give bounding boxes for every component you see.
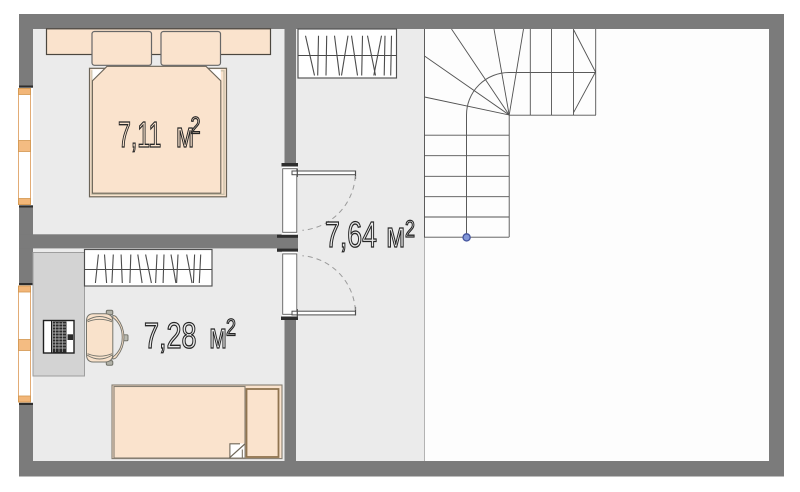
svg-text:7,64: 7,64 <box>325 214 377 255</box>
svg-text:7,28: 7,28 <box>144 315 197 356</box>
svg-text:7,11: 7,11 <box>118 116 161 155</box>
svg-text:м: м <box>209 316 227 356</box>
svg-text:2: 2 <box>226 315 236 341</box>
svg-text:2: 2 <box>405 217 415 243</box>
svg-text:м: м <box>386 214 405 255</box>
svg-text:2: 2 <box>191 113 201 139</box>
